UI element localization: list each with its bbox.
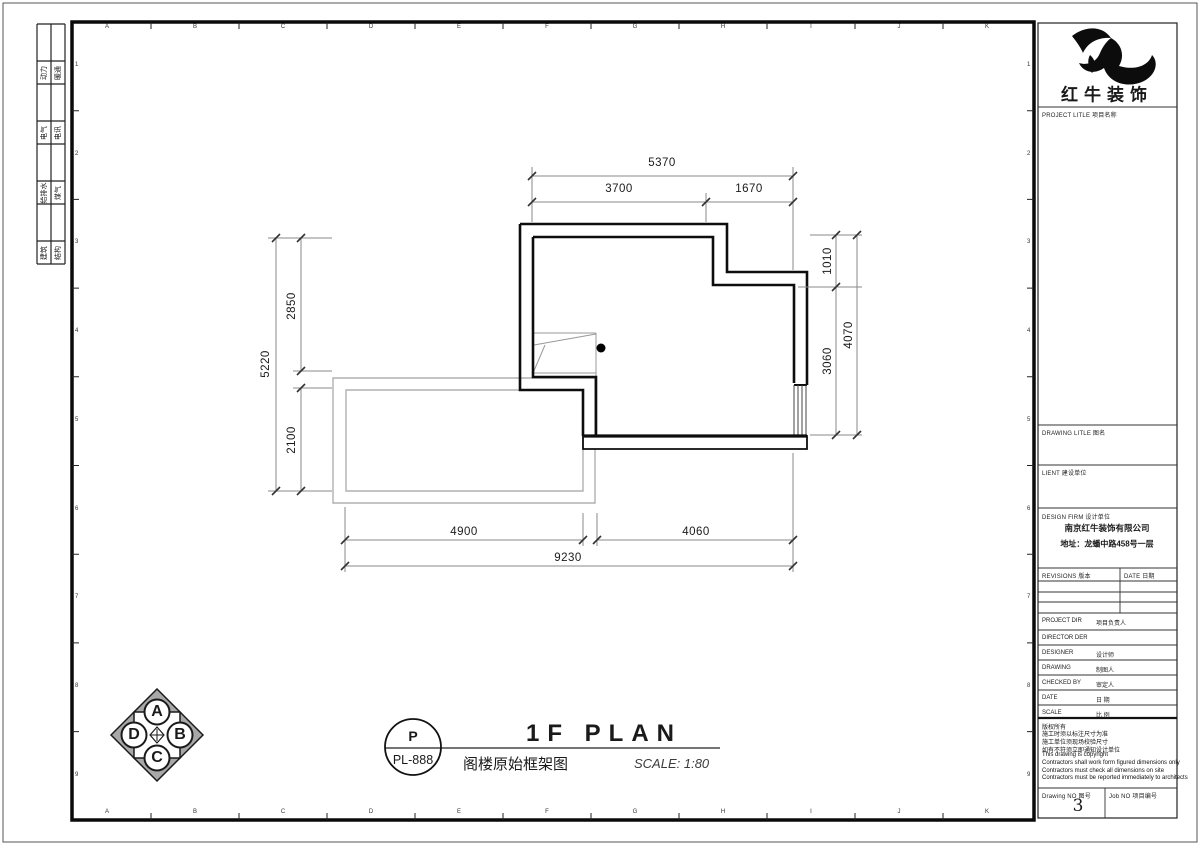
titleblock-field-label: DESIGNER xyxy=(1042,650,1073,656)
titleblock-field-label-cn: 项目负责人 xyxy=(1096,618,1126,627)
titleblock-note-line: This drawing is copyright xyxy=(1042,752,1108,758)
grid-letter-bottom: C xyxy=(281,809,285,815)
titleblock-note-line: Contractors shall work form figured dime… xyxy=(1042,760,1180,766)
grid-letter-top: H xyxy=(721,24,725,30)
titleblock-field-label-cn: 日 期 xyxy=(1096,695,1110,704)
dimension-label: 2100 xyxy=(286,426,298,454)
design-firm-name: 南京红牛装饰有限公司 xyxy=(1064,522,1149,534)
discipline-label: 结构 xyxy=(53,246,63,260)
grid-number-right: 5 xyxy=(1027,417,1030,423)
drawing-sheet: 红牛装饰 PROJECT LITLE 项目名称 DRAWING LITLE 图名… xyxy=(0,0,1200,845)
compass-letter: C xyxy=(151,749,163,767)
company-logo-text: 红牛装饰 xyxy=(1061,81,1153,106)
room-walls xyxy=(520,224,807,436)
dimension-label: 9230 xyxy=(554,552,582,564)
discipline-label: 煤气 xyxy=(53,186,63,200)
grid-letter-top: C xyxy=(281,24,285,30)
grid-letter-top: J xyxy=(898,24,901,30)
titleblock-note-line: Contractors must check all dimensions on… xyxy=(1042,768,1164,774)
grid-number-right: 7 xyxy=(1027,594,1030,600)
grid-number-left: 4 xyxy=(75,328,78,334)
plan-title: 1F PLAN xyxy=(526,720,682,748)
grid-letter-bottom: F xyxy=(545,809,549,815)
discipline-label: 给排水 xyxy=(39,182,49,203)
lower-room-outline xyxy=(333,378,595,503)
grid-letter-bottom: I xyxy=(810,809,812,815)
dimension-label: 3060 xyxy=(822,347,834,375)
grid-number-right: 1 xyxy=(1027,62,1030,68)
discipline-label: 动力 xyxy=(39,66,49,80)
dimension-label: 1010 xyxy=(822,247,834,275)
grid-number-right: 3 xyxy=(1027,239,1030,245)
grid-number-left: 9 xyxy=(75,772,78,778)
project-title-label: PROJECT LITLE 项目名称 xyxy=(1042,110,1117,119)
grid-letter-bottom: D xyxy=(369,809,373,815)
dimension-label: 5220 xyxy=(260,350,272,378)
drawing-frame xyxy=(72,22,1034,820)
grid-number-right: 6 xyxy=(1027,506,1030,512)
dimension-lines xyxy=(268,167,862,572)
window-symbol xyxy=(794,385,806,436)
grid-number-left: 3 xyxy=(75,239,78,245)
titleblock-field-label: DIRECTOR DER xyxy=(1042,635,1088,641)
dimension-ticks xyxy=(272,172,861,570)
grid-letter-bottom: A xyxy=(105,809,109,815)
stair-break-lines xyxy=(533,333,596,377)
compass-letter: A xyxy=(151,703,163,721)
column-dot xyxy=(597,344,606,353)
titleblock-field-label-cn: 比 例 xyxy=(1096,710,1110,719)
grid-number-left: 7 xyxy=(75,594,78,600)
dimension-label: 4070 xyxy=(843,321,855,349)
grid-number-right: 4 xyxy=(1027,328,1030,334)
scale-label: SCALE: 1:80 xyxy=(634,756,709,771)
stamp-letter: P xyxy=(408,728,417,744)
grid-letter-top: B xyxy=(193,24,197,30)
titleblock-field-label: DRAWING xyxy=(1042,665,1071,671)
grid-letter-bottom: E xyxy=(457,809,461,815)
design-firm-address: 地址：龙蟠中路458号一层 xyxy=(1060,539,1153,550)
design-firm-label: DESIGN FIRM 设计单位 xyxy=(1042,512,1110,521)
grid-letter-top: E xyxy=(457,24,461,30)
sheet-linework xyxy=(0,0,1200,845)
dimension-label: 5370 xyxy=(648,157,676,169)
dimension-label: 1670 xyxy=(735,183,763,195)
titleblock-field-label: PROJECT DIR xyxy=(1042,618,1082,624)
stamp-number: PL-888 xyxy=(393,753,433,767)
grid-letter-bottom: B xyxy=(193,809,197,815)
revisions-label: REVISIONS 版本 xyxy=(1042,571,1091,580)
grid-number-right: 2 xyxy=(1027,151,1030,157)
compass-letter: B xyxy=(174,726,186,744)
date-col-label: DATE 日期 xyxy=(1124,571,1155,580)
grid-letter-top: K xyxy=(985,24,989,30)
grid-number-right: 8 xyxy=(1027,683,1030,689)
grid-letter-top: G xyxy=(633,24,638,30)
drawing-title-label: DRAWING LITLE 图名 xyxy=(1042,428,1105,437)
plan-subtitle: 阁楼原始框架图 xyxy=(463,753,568,774)
titleblock-field-label: SCALE xyxy=(1042,710,1062,716)
discipline-table xyxy=(37,24,65,264)
titleblock-field-label-cn: 审定人 xyxy=(1096,680,1114,689)
company-logo-icon xyxy=(1072,28,1156,84)
drawing-no-value: 3 xyxy=(1073,796,1084,816)
titleblock-field-label-cn: 制图人 xyxy=(1096,665,1114,674)
dimension-label: 4900 xyxy=(450,526,478,538)
discipline-label: 电讯 xyxy=(53,126,63,140)
grid-number-left: 2 xyxy=(75,151,78,157)
grid-letter-bottom: J xyxy=(898,809,901,815)
grid-number-left: 5 xyxy=(75,417,78,423)
job-no-label: Job NO 项目编号 xyxy=(1109,791,1157,800)
grid-number-left: 8 xyxy=(75,683,78,689)
titleblock-note-line: Contractors must be reported immediately… xyxy=(1042,775,1188,781)
grid-letter-top: D xyxy=(369,24,373,30)
discipline-label: 暖通 xyxy=(53,66,63,80)
grid-letter-top: A xyxy=(105,24,109,30)
compass-letter: D xyxy=(128,726,140,744)
dimension-label: 2850 xyxy=(286,292,298,320)
titleblock-field-label: CHECKED BY xyxy=(1042,680,1081,686)
grid-number-left: 1 xyxy=(75,62,78,68)
grid-letter-bottom: G xyxy=(633,809,638,815)
bottom-wall xyxy=(583,436,807,449)
dimension-label: 3700 xyxy=(605,183,633,195)
grid-letter-bottom: H xyxy=(721,809,725,815)
client-label: LIENT 建设单位 xyxy=(1042,468,1087,477)
discipline-label: 电气 xyxy=(39,126,49,140)
grid-letter-bottom: K xyxy=(985,809,989,815)
grid-number-left: 6 xyxy=(75,506,78,512)
drawing-no-label: Drawing NO 图号 xyxy=(1042,791,1091,800)
grid-ticks xyxy=(72,22,1034,820)
grid-letter-top: I xyxy=(810,24,812,30)
grid-number-right: 9 xyxy=(1027,772,1030,778)
titleblock-field-label-cn: 设计师 xyxy=(1096,650,1114,659)
discipline-label: 建筑 xyxy=(39,246,49,260)
dimension-label: 4060 xyxy=(682,526,710,538)
titleblock-field-label: DATE xyxy=(1042,695,1058,701)
grid-letter-top: F xyxy=(545,24,549,30)
